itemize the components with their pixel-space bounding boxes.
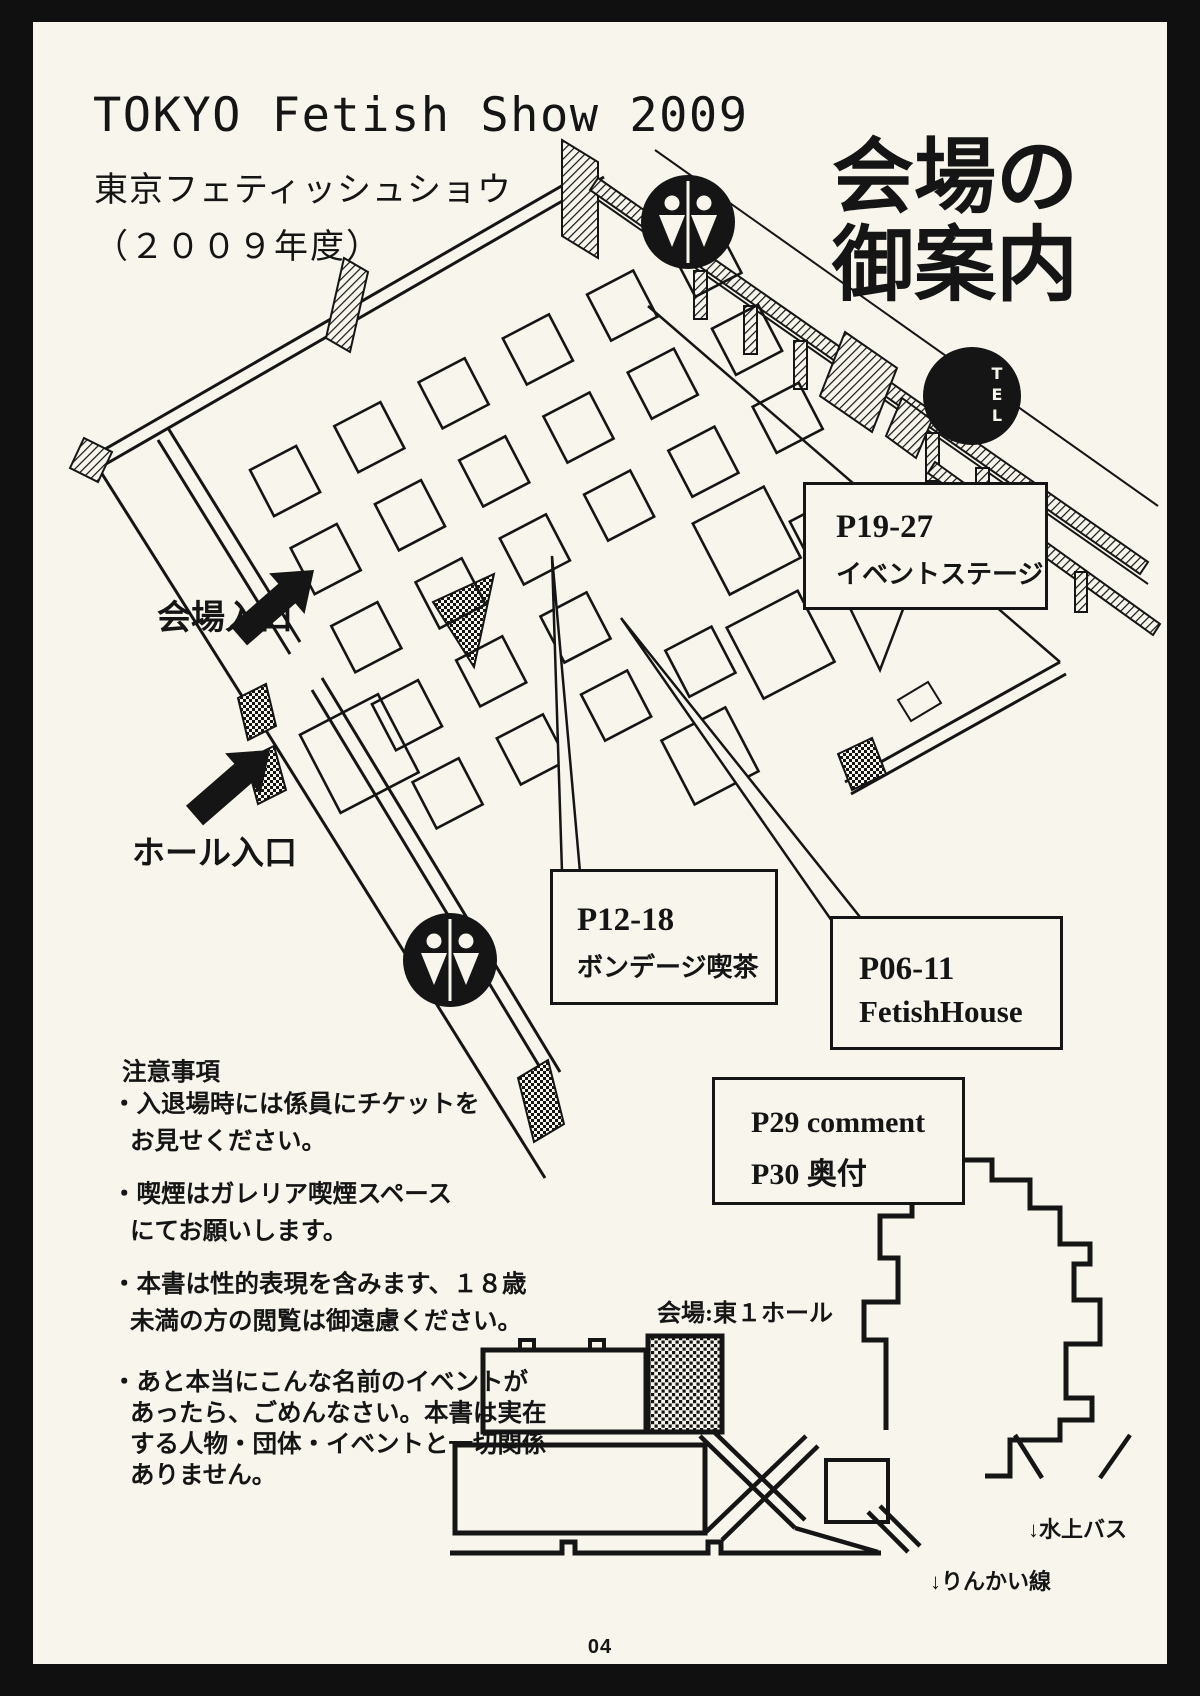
minimap-venue-label: 会場:東１ホール [657,1293,833,1328]
booth [500,514,570,584]
booth-large [693,487,801,595]
minimap-roads [700,1430,818,1540]
guide-heading-line1: 会場の [832,134,1078,222]
booth [587,271,657,341]
stage-callout-tail [848,604,905,670]
comment-callout-line1: P29 comment [751,1106,962,1140]
hall-entrance-label: ホール入口 [132,826,297,874]
guide-heading-line2: 御案内 [832,222,1078,310]
booth [668,427,738,497]
booth [628,349,698,419]
minimap-plaza [826,1460,888,1522]
tel-icon-label: TEL [988,363,1006,426]
bondage-cafe-callout: P12-18 ボンデージ喫茶 [550,869,778,1005]
stage-callout-name: イベントステージ [836,554,1045,591]
restroom-icon [641,175,735,269]
minimap-illustration [450,1160,1130,1553]
venue-entrance-label: 会場入口 [157,590,293,639]
booth [250,446,320,516]
booth [584,471,654,541]
fetish-house-callout-pages: P06-11 [859,951,1060,988]
bondage-cafe-callout-name: ボンデージ喫茶 [577,947,775,984]
minimap-rinkai-line-label: ↓りんかい線 [930,1564,1051,1596]
notes-heading: 注意事項 [122,1053,220,1088]
booth [334,402,404,472]
booth [753,383,823,453]
minimap-water-bus-label: ↓水上バス [1028,1512,1127,1544]
scanned-page: TOKYO Fetish Show 2009 東京フェティッシュショウ （２００… [0,0,1200,1696]
booth [581,670,651,740]
note-line: あったら、ごめんなさい。本書は実在 [130,1394,547,1429]
note-line: ありません。 [130,1456,276,1491]
guide-heading: 会場の 御案内 [832,134,1078,310]
page-title-ja: 東京フェティッシュショウ [94,162,512,211]
restroom-icon [403,913,497,1007]
minimap-east-hall-1-highlight [648,1336,722,1432]
page-title-year: （２００９年度） [94,219,382,268]
fetish-house-callout: P06-11 FetishHouse [830,916,1063,1050]
note-line: にてお願いします。 [130,1212,347,1247]
note-line: ・あと本当にこんな名前のイベントが [112,1363,528,1398]
booth [543,392,613,462]
booth [419,358,489,428]
note-line: ・入退場時には係員にチケットを [112,1085,480,1120]
booth [372,680,442,750]
comment-callout: P29 comment P30 奥付 [712,1077,965,1205]
page-number: 04 [570,1636,630,1659]
booth [413,758,483,828]
note-line: ・喫煙はガレリア喫煙スペース [112,1175,452,1210]
booth [540,592,610,662]
note-line: 未満の方の閲覧は御遠慮ください。 [130,1302,522,1337]
booth-large [300,694,419,813]
booth [503,314,573,384]
booth [375,480,445,550]
booth [459,436,529,506]
note-line: ・本書は性的表現を含みます、１８歳 [112,1265,527,1300]
telephone-icon [923,347,1021,445]
stage-callout: P19-27 イベントステージ [803,482,1048,610]
page-title-en: TOKYO Fetish Show 2009 [93,88,749,143]
bondage-cafe-callout-pages: P12-18 [577,902,775,939]
stage-callout-pages: P19-27 [836,509,1045,546]
booth [331,602,401,672]
minimap-conference-tower [864,1160,1100,1476]
note-line: お見せください。 [130,1122,326,1157]
comment-callout-line2: P30 奥付 [751,1149,962,1193]
fetish-house-callout-name: FetishHouse [859,994,1060,1030]
minimap-shore-line [450,1542,881,1553]
note-line: する人物・団体・イベントと一切関係 [130,1425,547,1460]
